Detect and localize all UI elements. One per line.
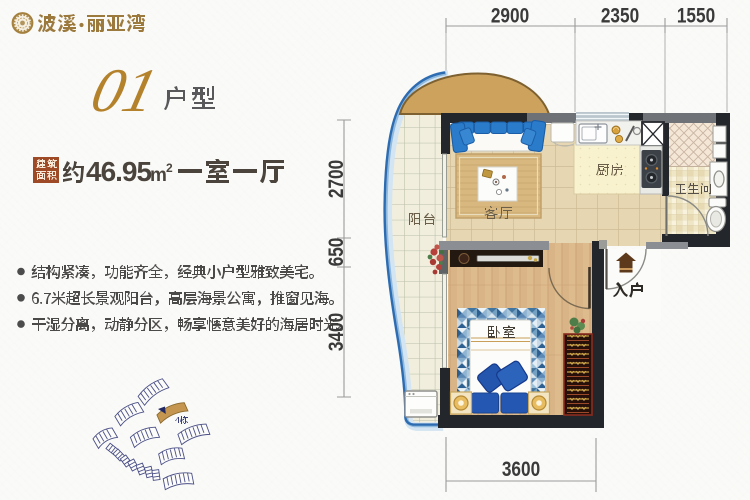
- svg-text:2350: 2350: [601, 5, 639, 28]
- svg-text:3400: 3400: [326, 313, 349, 351]
- svg-text:650: 650: [326, 238, 349, 267]
- svg-text:2700: 2700: [326, 160, 349, 198]
- svg-text:2: 2: [166, 161, 173, 175]
- svg-text:3600: 3600: [502, 459, 540, 482]
- svg-text:01: 01: [85, 56, 164, 125]
- svg-text:46.95: 46.95: [86, 156, 151, 187]
- svg-text:1550: 1550: [677, 5, 715, 28]
- svg-text:m: m: [150, 165, 167, 186]
- svg-text:2900: 2900: [491, 5, 529, 28]
